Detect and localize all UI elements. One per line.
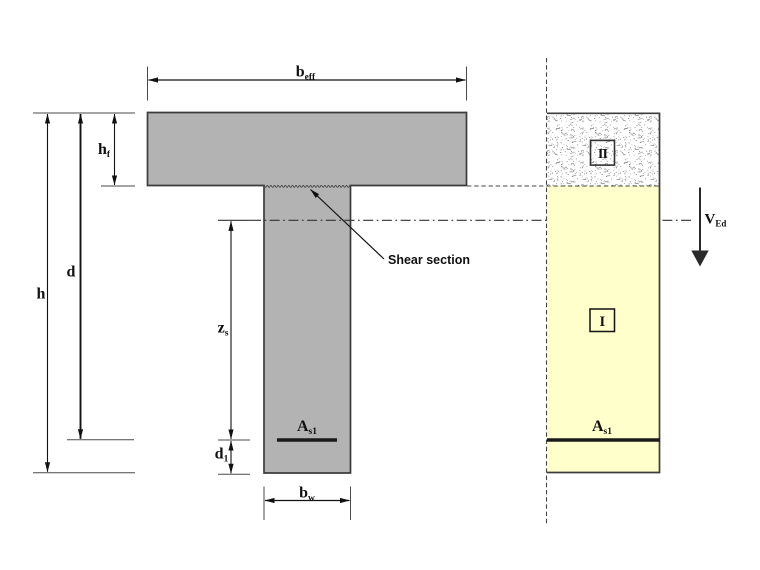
svg-text:h: h (37, 286, 46, 303)
svg-text:hf: hf (98, 141, 111, 160)
svg-text:II: II (598, 147, 608, 162)
svg-text:zs: zs (218, 320, 229, 339)
svg-text:d1: d1 (215, 446, 229, 465)
svg-text:bw: bw (299, 485, 315, 504)
svg-text:VEd: VEd (705, 212, 727, 229)
svg-text:d: d (67, 264, 76, 281)
svg-text:Shear section: Shear section (388, 253, 470, 267)
svg-text:beff: beff (296, 64, 316, 83)
svg-text:I: I (599, 314, 605, 330)
